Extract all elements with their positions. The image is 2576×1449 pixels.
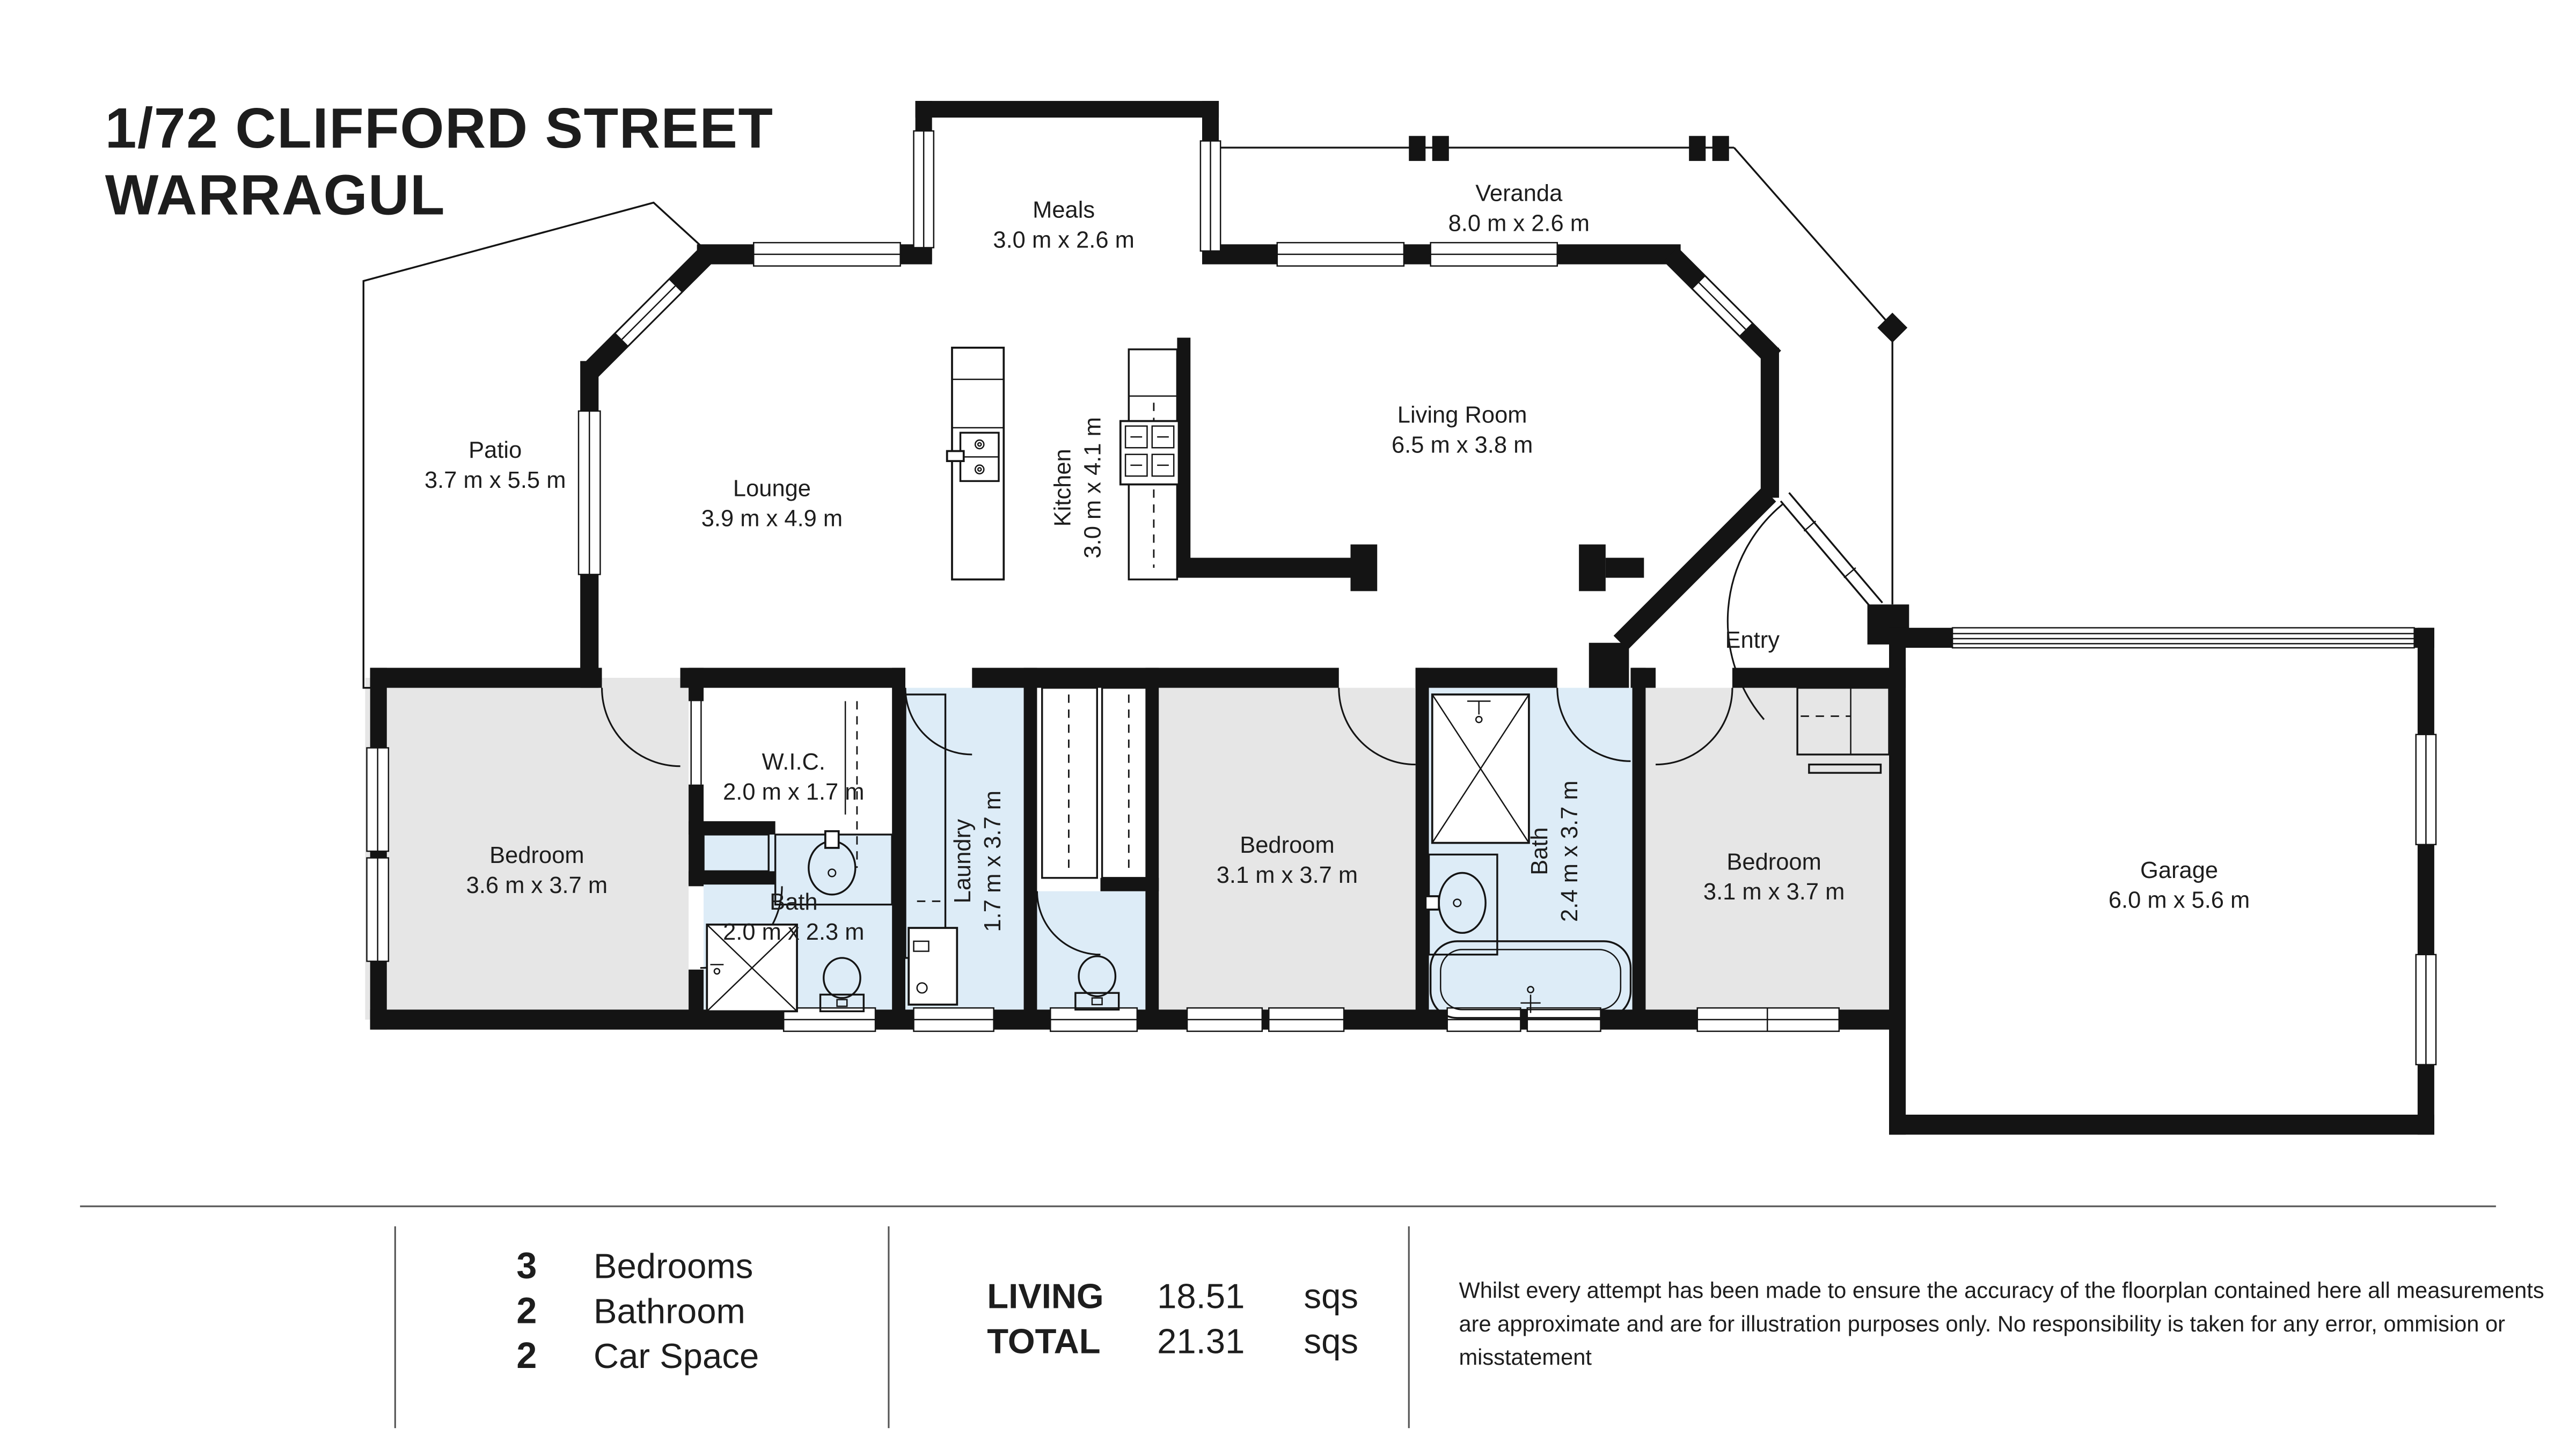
title-line1: 1/72 CLIFFORD STREET [105, 97, 774, 160]
total-area-unit: sqs [1304, 1321, 1359, 1360]
bath2-window [1527, 1008, 1601, 1031]
walls-upper-block [580, 101, 1909, 688]
veranda-post [1432, 136, 1449, 161]
bedroom2-dims: 3.1 m x 3.7 m [1217, 862, 1358, 888]
living-area-unit: sqs [1304, 1276, 1359, 1315]
garage-window [2416, 955, 2436, 1065]
entry-wall-post [1589, 643, 1629, 688]
living-area-value: 18.51 [1157, 1276, 1245, 1315]
wic-dims: 2.0 m x 1.7 m [723, 779, 864, 805]
bedroom2-window [1187, 1008, 1262, 1031]
lounge-dims: 3.9 m x 4.9 m [701, 506, 843, 531]
patio-label: Patio [469, 437, 522, 463]
garage-label: Garage [2140, 858, 2218, 883]
island-tap [947, 451, 964, 461]
bath1-nook-wall [689, 871, 775, 884]
linen-closet [1042, 688, 1097, 878]
laundry-label: Laundry [950, 819, 976, 903]
wic-label: W.I.C. [762, 749, 825, 775]
bath2-bedroom3-wall [1633, 668, 1646, 1021]
row-bottom-wall [370, 1009, 1906, 1029]
bedroom3-dims: 3.1 m x 3.7 m [1703, 879, 1845, 905]
stat-bedrooms-label: Bedrooms [594, 1246, 753, 1285]
bedroom1-window [367, 858, 388, 962]
lounge-label: Lounge [733, 475, 811, 501]
bedroom1-label: Bedroom [489, 843, 584, 868]
bath2-window [1447, 1008, 1521, 1031]
meals-label: Meals [1033, 197, 1095, 223]
areas-block: LIVING 18.51 sqs TOTAL 21.31 sqs [987, 1276, 1358, 1360]
veranda-post [1409, 136, 1425, 161]
bath2-tap [1425, 896, 1439, 910]
disclaimer-line2: are approximate and are for illustration… [1459, 1311, 2505, 1336]
veranda-label: Veranda [1475, 180, 1563, 206]
row-top-wall [680, 668, 905, 687]
washing-machine [909, 928, 957, 1005]
bath2-dims: 2.4 m x 3.7 m [1557, 780, 1583, 921]
kitchen-label: Kitchen [1050, 449, 1076, 526]
angled-window-right [1699, 283, 1746, 330]
garage-door [1952, 628, 2414, 648]
stat-bathroom-label: Bathroom [594, 1291, 745, 1330]
bath1-tap [825, 831, 839, 848]
bath2-label: Bath [1527, 827, 1553, 875]
bath1-dims: 2.0 m x 2.3 m [723, 919, 864, 945]
cooktop [1121, 421, 1179, 485]
total-area-value: 21.31 [1157, 1321, 1245, 1360]
garage-left-wall [1889, 628, 1906, 1135]
garage-bottom-wall [1889, 1115, 2434, 1135]
bedroom3-window [1697, 1008, 1839, 1031]
living-area-label: LIVING [987, 1276, 1103, 1315]
meals-dims: 3.0 m x 2.6 m [993, 227, 1134, 253]
kitchen-label-group: Kitchen 3.0 m x 4.1 m [1050, 417, 1106, 558]
stub-post-left [1351, 544, 1378, 591]
bedroom1-wic-wall [689, 668, 704, 701]
stat-carspace-label: Car Space [594, 1336, 759, 1375]
bedroom2-bath2-wall [1416, 668, 1429, 1021]
living-right-wall [1761, 348, 1779, 498]
lounge-left-window [579, 411, 600, 574]
page-title: 1/72 CLIFFORD STREET WARRAGUL [105, 97, 774, 226]
floorplan-canvas: Meals 3.0 m x 2.6 m Veranda 8.0 m x 2.6 … [0, 0, 2576, 1449]
meals-window [914, 131, 934, 247]
garage-dims: 6.0 m x 5.6 m [2109, 888, 2250, 913]
veranda-corner-post [1877, 313, 1907, 343]
laundry-hall-wall [1024, 668, 1037, 1021]
patio-outline [363, 203, 712, 688]
stat-carspace-count: 2 [516, 1335, 537, 1376]
disclaimer-line1: Whilst every attempt has been made to en… [1459, 1278, 2544, 1303]
bath-laundry-wall [892, 668, 905, 1021]
disclaimer-line3: misstatement [1459, 1344, 1592, 1370]
row-top-wall [370, 668, 602, 687]
angled-window-left [622, 286, 675, 339]
living-top-window [1277, 243, 1404, 266]
living-label: Living Room [1397, 402, 1527, 428]
row-top-wall [1732, 668, 1906, 687]
bedroom2-label: Bedroom [1240, 832, 1334, 858]
stub-post-right [1579, 544, 1606, 591]
meals-window [1201, 141, 1220, 251]
wc-window [1050, 1008, 1137, 1031]
bedroom1-dims: 3.6 m x 3.7 m [466, 873, 608, 898]
kitchen-dims: 3.0 m x 4.1 m [1080, 417, 1106, 558]
bedroom3-label: Bedroom [1726, 849, 1821, 875]
veranda-post [1713, 136, 1729, 161]
total-area-label: TOTAL [987, 1321, 1100, 1360]
bedroom1-window [367, 748, 388, 851]
room-fills [365, 678, 1889, 1020]
laundry-window [914, 1008, 994, 1031]
living-stub-wall [1606, 558, 1644, 577]
bedroom1-bath-wall [689, 970, 704, 1021]
stat-bedrooms-count: 3 [516, 1245, 537, 1286]
lounge-top-window [753, 243, 900, 266]
wic-cased-opening [691, 701, 701, 785]
living-dims: 6.5 m x 3.8 m [1392, 433, 1533, 458]
kitchen-stub-wall [1177, 558, 1350, 577]
bath1-label: Bath [770, 889, 817, 915]
living-top-window [1431, 243, 1557, 266]
disclaimer: Whilst every attempt has been made to en… [1459, 1278, 2544, 1370]
laundry-dims: 1.7 m x 3.7 m [980, 791, 1006, 932]
stat-bathroom-count: 2 [516, 1290, 537, 1331]
meals-top-wall [916, 101, 1219, 118]
bath2-shower [1432, 694, 1529, 843]
row-top-wall [1416, 668, 1557, 687]
stats-block: 3 Bedrooms 2 Bathroom 2 Car Space [516, 1245, 759, 1376]
entry-label: Entry [1725, 627, 1780, 653]
veranda-edge-diagonal [1734, 148, 1892, 328]
patio-dims: 3.7 m x 5.5 m [425, 467, 566, 493]
veranda-dims: 8.0 m x 2.6 m [1448, 210, 1590, 236]
title-line2: WARRAGUL [105, 163, 445, 226]
bedroom2-window [1269, 1008, 1344, 1031]
wic-bottom-wall [689, 821, 775, 835]
kitchen-island [947, 348, 1004, 580]
veranda-post [1689, 136, 1706, 161]
bedroom1-wic-wall [689, 785, 704, 887]
summary-footer: 3 Bedrooms 2 Bathroom 2 Car Space LIVING… [80, 1206, 2544, 1428]
garage-window [2416, 735, 2436, 845]
